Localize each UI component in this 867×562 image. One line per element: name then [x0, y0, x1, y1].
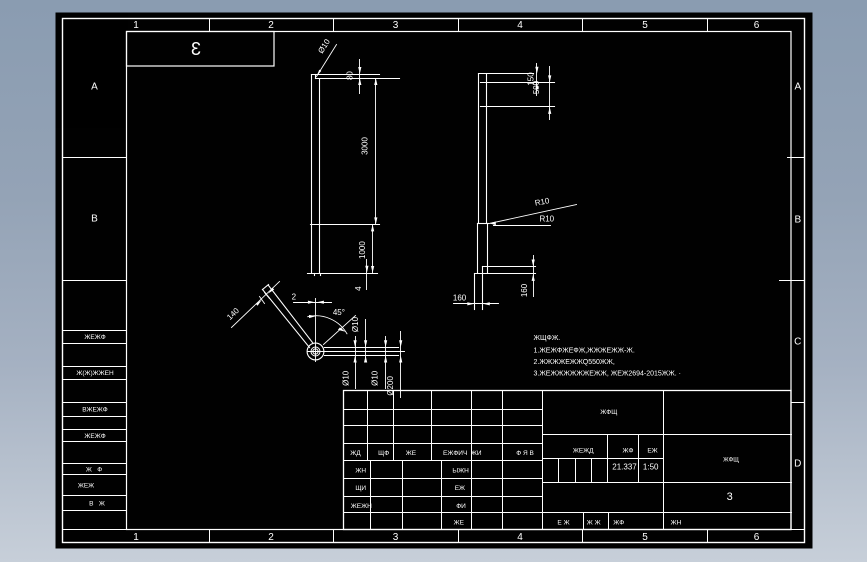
svg-text:1: 1	[133, 20, 139, 31]
svg-text:2.ЖЖЖЖЕЖЖQ550ЖЖ,: 2.ЖЖЖЖЕЖЖQ550ЖЖ,	[534, 359, 615, 366]
svg-text:Е Ж: Е Ж	[557, 519, 569, 526]
svg-text:2: 2	[292, 292, 297, 301]
svg-text:21.337: 21.337	[612, 462, 637, 471]
svg-text:Ж Ж: Ж Ж	[587, 519, 601, 526]
svg-text:D: D	[794, 459, 801, 470]
svg-text:80: 80	[346, 71, 355, 80]
svg-text:A: A	[794, 82, 801, 93]
svg-text:3: 3	[393, 532, 399, 543]
svg-text:1000: 1000	[358, 241, 367, 259]
svg-text:ЩИ: ЩИ	[355, 485, 366, 492]
svg-text:Ø10: Ø10	[371, 370, 380, 386]
svg-text:ЖЕЖД: ЖЕЖД	[573, 448, 594, 455]
svg-text:Ø10: Ø10	[341, 370, 350, 386]
svg-text:Ф Я В: Ф Я В	[516, 450, 534, 457]
svg-text:160: 160	[453, 293, 467, 302]
svg-text:ЖЕЖФ: ЖЕЖФ	[84, 334, 105, 341]
svg-text:Ø200: Ø200	[386, 376, 395, 396]
svg-text:3.ЖЕЖЖЖЖЖЖЕЖЖ, ЖЕЖ2694-2015ЖЖ.: 3.ЖЕЖЖЖЖЖЖЕЖЖ, ЖЕЖ2694-2015ЖЖ. ·	[534, 371, 681, 378]
svg-text:A: A	[91, 82, 98, 93]
svg-text:ЖЕ: ЖЕ	[454, 519, 465, 526]
svg-text:ЖН: ЖН	[671, 519, 682, 526]
svg-text:ЖЕЖН: ЖЕЖН	[351, 503, 372, 510]
svg-text:5: 5	[642, 532, 648, 543]
svg-text:2: 2	[268, 532, 274, 543]
svg-text:4: 4	[517, 20, 523, 31]
svg-text:160: 160	[520, 283, 529, 297]
svg-text:ЖЩФЖ.: ЖЩФЖ.	[534, 335, 561, 342]
svg-text:B: B	[794, 215, 801, 226]
svg-text:ЫЖН: ЫЖН	[452, 468, 469, 475]
svg-text:2: 2	[268, 20, 274, 31]
svg-text:4: 4	[517, 532, 523, 543]
svg-text:В Ж: В Ж	[89, 500, 105, 507]
svg-text:ЖЕЖ: ЖЕЖ	[78, 483, 94, 490]
svg-text:6: 6	[754, 532, 760, 543]
svg-text:ФИ: ФИ	[456, 503, 466, 510]
svg-text:ЖФ: ЖФ	[613, 519, 624, 526]
svg-text:ЕЖФИЧ ЖИ: ЕЖФИЧ ЖИ	[443, 450, 482, 457]
svg-text:ЖЕЖФ: ЖЕЖФ	[84, 433, 105, 440]
svg-text:1:50: 1:50	[643, 462, 659, 471]
svg-text:ЖФ: ЖФ	[623, 448, 634, 455]
svg-text:ЕЖ: ЕЖ	[647, 448, 657, 455]
svg-text:Ж(Ж)ЖЖЕН: Ж(Ж)ЖЖЕН	[76, 370, 114, 377]
svg-text:ЖД: ЖД	[350, 450, 361, 457]
svg-text:4: 4	[354, 286, 363, 291]
svg-text:C: C	[794, 337, 801, 348]
svg-text:3: 3	[393, 20, 399, 31]
svg-text:ЩФ: ЩФ	[378, 450, 389, 457]
svg-text:ЖЕ: ЖЕ	[406, 450, 417, 457]
svg-text:500: 500	[532, 80, 541, 94]
svg-text:R10: R10	[539, 215, 554, 224]
svg-text:ЖФЩ: ЖФЩ	[723, 457, 739, 463]
svg-text:ЕЖ: ЕЖ	[455, 485, 465, 492]
svg-text:3000: 3000	[360, 137, 369, 155]
svg-text:1: 1	[133, 532, 139, 543]
svg-text:ВЖЕЖФ: ВЖЕЖФ	[82, 406, 108, 413]
svg-text:B: B	[91, 214, 98, 225]
svg-text:ЖФЩ: ЖФЩ	[600, 409, 617, 416]
svg-text:6: 6	[754, 20, 760, 31]
svg-text:3: 3	[727, 491, 733, 503]
svg-text:5: 5	[642, 20, 648, 31]
svg-text:3: 3	[191, 39, 201, 59]
svg-text:ЖН: ЖН	[355, 468, 366, 475]
svg-text:Ж Ф: Ж Ф	[86, 467, 102, 474]
svg-text:Ø10: Ø10	[351, 316, 360, 332]
svg-text:45°: 45°	[333, 308, 345, 317]
svg-text:1.ЖЕЖФЖЕФЖ,ЖЖЖЕЖЖ-Ж.: 1.ЖЕЖФЖЕФЖ,ЖЖЖЕЖЖ-Ж.	[534, 348, 635, 355]
